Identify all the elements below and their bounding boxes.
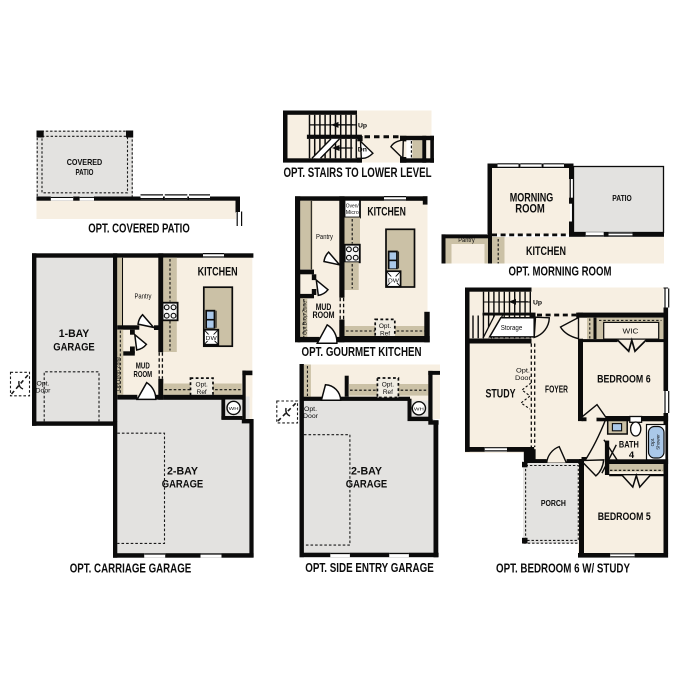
svg-text:BEDROOM 5: BEDROOM 5 bbox=[598, 511, 651, 523]
svg-text:4: 4 bbox=[629, 450, 635, 461]
svg-text:Oven/: Oven/ bbox=[346, 204, 359, 210]
svg-text:ROOM: ROOM bbox=[134, 369, 153, 379]
svg-text:OPT. STAIRS TO LOWER LEVEL: OPT. STAIRS TO LOWER LEVEL bbox=[284, 165, 432, 180]
svg-text:Opt.: Opt. bbox=[650, 438, 655, 447]
svg-text:COVERED: COVERED bbox=[67, 158, 103, 167]
svg-text:MORNING: MORNING bbox=[510, 192, 554, 204]
svg-text:OPT. COVERED PATIO: OPT. COVERED PATIO bbox=[88, 221, 190, 236]
svg-text:GARAGE: GARAGE bbox=[346, 479, 388, 491]
svg-text:Storage: Storage bbox=[501, 325, 523, 332]
svg-text:PORCH: PORCH bbox=[541, 499, 566, 508]
svg-text:Pantry: Pantry bbox=[458, 237, 475, 244]
svg-text:GARAGE: GARAGE bbox=[53, 342, 95, 354]
svg-text:Opt.: Opt. bbox=[379, 323, 391, 330]
svg-text:Opt.Drop Zone: Opt.Drop Zone bbox=[303, 301, 309, 335]
svg-text:Opt.Drop Zone: Opt.Drop Zone bbox=[116, 357, 122, 391]
svg-text:OPT. GOURMET KITCHEN: OPT. GOURMET KITCHEN bbox=[302, 344, 422, 359]
svg-text:OPT. CARRIAGE GARAGE: OPT. CARRIAGE GARAGE bbox=[70, 561, 192, 576]
svg-text:Up: Up bbox=[358, 122, 367, 129]
svg-text:Opt.: Opt. bbox=[382, 382, 394, 389]
svg-text:OPT. MORNING ROOM: OPT. MORNING ROOM bbox=[509, 263, 612, 278]
svg-text:KITCHEN: KITCHEN bbox=[526, 246, 566, 258]
svg-text:Up: Up bbox=[533, 300, 542, 307]
svg-text:OPT. BEDROOM 6 W/ STUDY: OPT. BEDROOM 6 W/ STUDY bbox=[496, 560, 630, 575]
svg-text:DW: DW bbox=[206, 336, 218, 342]
svg-text:BATH: BATH bbox=[619, 439, 639, 450]
svg-text:FOYER: FOYER bbox=[545, 385, 569, 396]
svg-text:Opt.: Opt. bbox=[196, 382, 208, 389]
svg-text:PATIO: PATIO bbox=[612, 194, 632, 203]
svg-text:Door: Door bbox=[303, 414, 318, 420]
svg-text:Micro: Micro bbox=[346, 210, 359, 216]
svg-text:OPT. SIDE ENTRY GARAGE: OPT. SIDE ENTRY GARAGE bbox=[305, 560, 434, 575]
svg-text:Pantry: Pantry bbox=[135, 291, 152, 300]
svg-text:1-BAY: 1-BAY bbox=[59, 328, 90, 340]
svg-text:Door: Door bbox=[515, 375, 531, 382]
svg-text:2-BAY: 2-BAY bbox=[351, 466, 382, 478]
svg-text:Door: Door bbox=[36, 389, 51, 395]
svg-text:ROOM: ROOM bbox=[515, 204, 545, 216]
svg-text:Opt.: Opt. bbox=[304, 407, 317, 413]
svg-text:STUDY: STUDY bbox=[486, 387, 516, 401]
svg-text:GARAGE: GARAGE bbox=[162, 479, 204, 491]
svg-text:WH: WH bbox=[414, 406, 425, 412]
svg-text:Dn: Dn bbox=[358, 146, 367, 153]
svg-text:Shower: Shower bbox=[655, 434, 660, 450]
svg-text:Pantry: Pantry bbox=[316, 232, 333, 241]
svg-text:Opt.: Opt. bbox=[37, 382, 50, 388]
svg-text:DW: DW bbox=[388, 278, 400, 284]
svg-text:WH: WH bbox=[229, 406, 240, 412]
svg-text:WIC: WIC bbox=[623, 327, 639, 336]
svg-text:PATIO: PATIO bbox=[76, 168, 94, 177]
svg-text:Ref: Ref bbox=[383, 389, 393, 396]
svg-text:ROOM: ROOM bbox=[313, 310, 335, 321]
svg-text:2-BAY: 2-BAY bbox=[167, 466, 198, 478]
svg-text:KITCHEN: KITCHEN bbox=[367, 206, 406, 218]
svg-text:BEDROOM 6: BEDROOM 6 bbox=[597, 374, 651, 386]
svg-text:KITCHEN: KITCHEN bbox=[198, 266, 238, 278]
svg-text:Opt.: Opt. bbox=[516, 368, 530, 375]
